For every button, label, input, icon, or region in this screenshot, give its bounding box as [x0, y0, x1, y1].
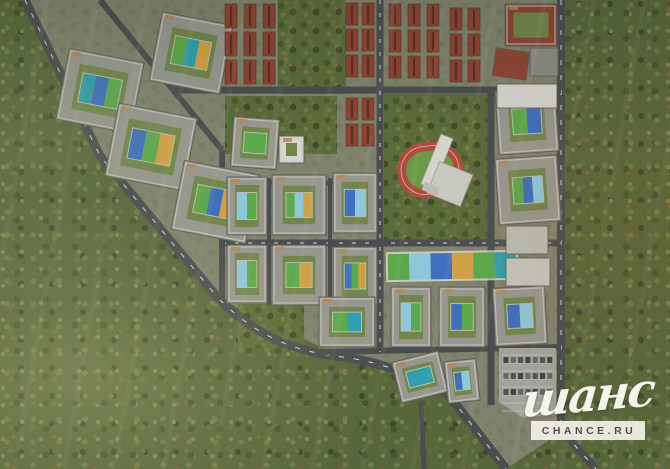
watermark-brand-script: шанс — [518, 366, 658, 424]
townhouse-rows-1 — [225, 4, 275, 84]
courtyard-block-c1 — [391, 287, 431, 347]
brick-building-angled — [492, 48, 530, 80]
courtyard-block-c2 — [439, 287, 485, 347]
courtyard-block-b6 — [333, 247, 377, 305]
townhouse-rows-3 — [389, 4, 439, 78]
gray-building-northeast — [530, 48, 558, 76]
park-townhouse-gap — [278, 0, 346, 94]
courtyard-block-e2 — [444, 358, 480, 403]
courtyard-block-b3 — [333, 173, 377, 233]
b-shaped-building — [279, 136, 304, 163]
courtyard-block-b7 — [319, 297, 375, 347]
courtyard-block-b4 — [227, 245, 267, 303]
white-slab-building — [497, 84, 557, 108]
brick-perimeter-block — [505, 4, 557, 46]
courtyard-block-b1 — [227, 177, 267, 235]
street-south-exit — [421, 402, 424, 469]
courtyard-block-d2 — [495, 155, 561, 225]
slab-building-east-1 — [506, 226, 548, 254]
slab-building-east-2 — [506, 258, 550, 286]
watermark: шанс CHANCE.RU — [520, 372, 656, 440]
courtyard-block-c3 — [493, 286, 548, 347]
masterplan-image: шанс CHANCE.RU — [0, 0, 670, 469]
courtyard-block-b5 — [272, 245, 326, 305]
courtyard-block-a2 — [149, 12, 233, 94]
playground-strip — [386, 250, 519, 282]
courtyard-block-a5 — [230, 116, 279, 169]
courtyard-block-b2 — [272, 175, 326, 235]
